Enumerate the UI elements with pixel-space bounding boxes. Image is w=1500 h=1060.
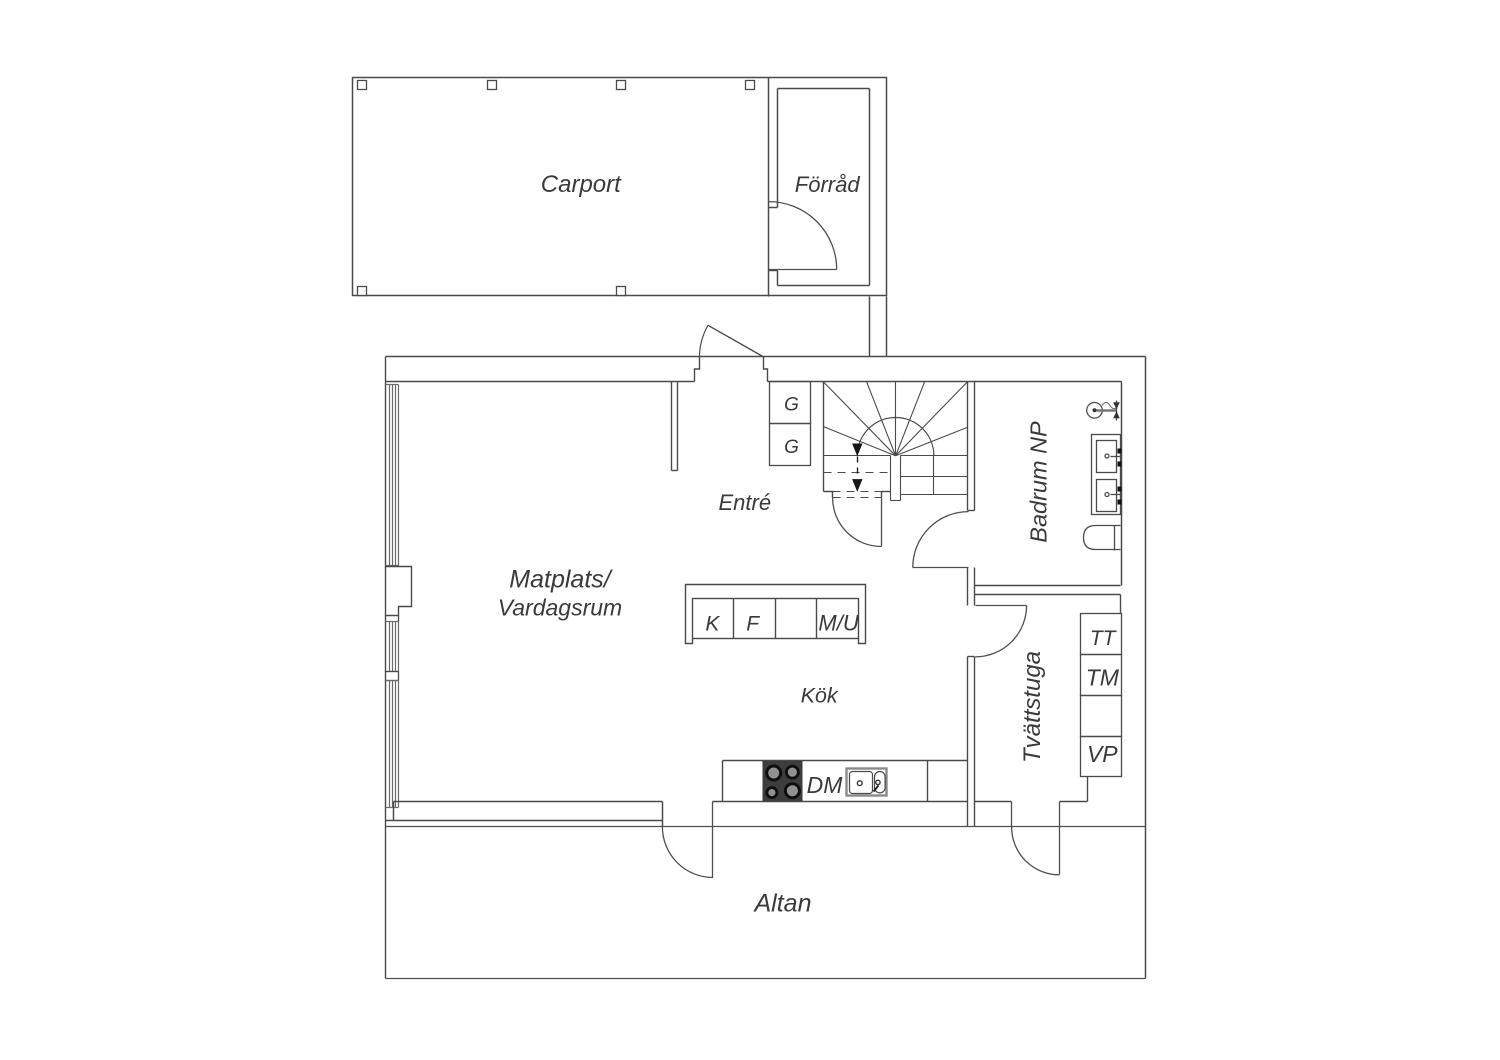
svg-text:Matplats/: Matplats/ bbox=[509, 566, 613, 594]
svg-text:Vardagsrum: Vardagsrum bbox=[498, 595, 622, 621]
svg-text:M/U: M/U bbox=[818, 610, 858, 635]
svg-text:Tvättstuga: Tvättstuga bbox=[1019, 651, 1046, 763]
svg-text:VP: VP bbox=[1087, 741, 1118, 767]
svg-text:Badrum NP: Badrum NP bbox=[1026, 421, 1052, 543]
svg-text:Kök: Kök bbox=[801, 683, 839, 707]
svg-text:Förråd: Förråd bbox=[795, 172, 861, 197]
svg-text:Entré: Entré bbox=[719, 490, 772, 515]
svg-text:K: K bbox=[705, 612, 720, 635]
svg-text:DM: DM bbox=[807, 772, 844, 798]
svg-text:G: G bbox=[784, 395, 799, 416]
svg-text:Carport: Carport bbox=[541, 171, 622, 198]
svg-text:F: F bbox=[746, 612, 760, 635]
svg-text:G: G bbox=[784, 437, 799, 458]
svg-text:TT: TT bbox=[1090, 627, 1118, 650]
svg-text:Altan: Altan bbox=[753, 890, 812, 918]
svg-text:TM: TM bbox=[1086, 664, 1120, 690]
